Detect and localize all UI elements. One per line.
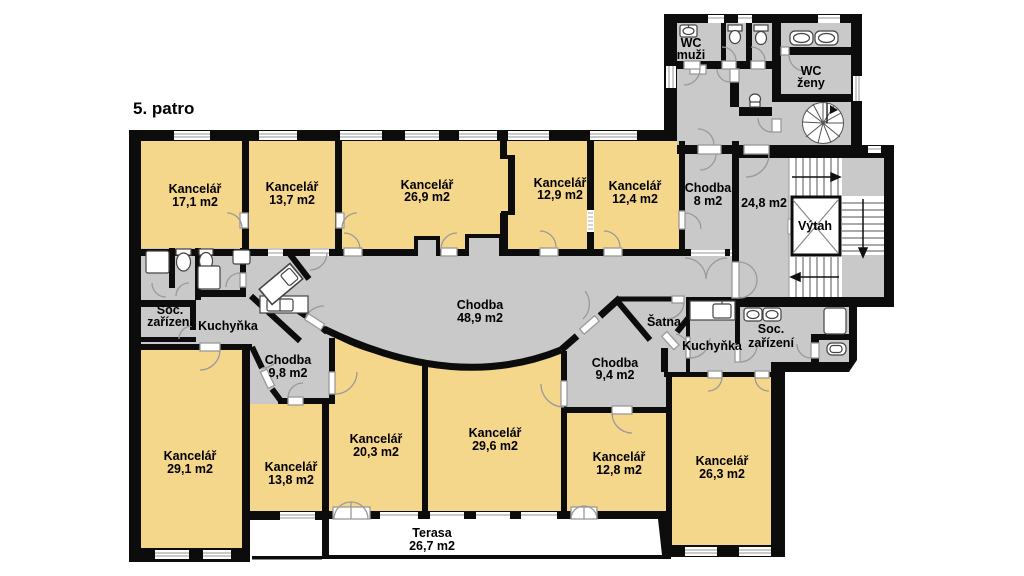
svg-text:29,6 m2: 29,6 m2 — [472, 439, 518, 453]
svg-text:Šatna: Šatna — [647, 314, 682, 329]
svg-text:zařízení: zařízení — [147, 315, 193, 329]
svg-text:48,9 m2: 48,9 m2 — [457, 311, 503, 325]
svg-text:26,3 m2: 26,3 m2 — [699, 467, 745, 481]
svg-text:Kancelář: Kancelář — [469, 426, 522, 440]
svg-text:5. patro: 5. patro — [133, 99, 194, 118]
svg-text:26,9 m2: 26,9 m2 — [404, 190, 450, 204]
svg-text:29,1 m2: 29,1 m2 — [167, 462, 213, 476]
svg-text:26,7 m2: 26,7 m2 — [409, 539, 455, 553]
svg-text:Kancelář: Kancelář — [609, 179, 662, 193]
svg-text:Kancelář: Kancelář — [164, 449, 217, 463]
svg-text:13,7 m2: 13,7 m2 — [269, 193, 315, 207]
svg-text:24,8 m2: 24,8 m2 — [741, 196, 787, 210]
svg-text:12,9 m2: 12,9 m2 — [537, 188, 583, 202]
svg-text:zařízení: zařízení — [748, 336, 794, 350]
svg-text:Kuchyňka: Kuchyňka — [198, 319, 259, 333]
svg-text:Kuchyňka: Kuchyňka — [682, 339, 743, 353]
svg-text:20,3 m2: 20,3 m2 — [353, 445, 399, 459]
svg-text:Kancelář: Kancelář — [696, 454, 749, 468]
svg-text:13,8 m2: 13,8 m2 — [268, 473, 314, 487]
svg-text:Kancelář: Kancelář — [593, 450, 646, 464]
svg-text:12,4 m2: 12,4 m2 — [612, 192, 658, 206]
svg-text:Kancelář: Kancelář — [350, 432, 403, 446]
svg-text:Terasa: Terasa — [412, 526, 452, 540]
svg-text:ženy: ženy — [797, 76, 825, 90]
svg-text:Soc.: Soc. — [758, 322, 784, 336]
svg-text:Chodba: Chodba — [265, 353, 313, 367]
svg-text:Chodba: Chodba — [457, 298, 505, 312]
svg-text:Kancelář: Kancelář — [265, 460, 318, 474]
svg-text:Kancelář: Kancelář — [169, 182, 222, 196]
svg-text:8 m2: 8 m2 — [694, 194, 723, 208]
svg-text:12,8 m2: 12,8 m2 — [596, 463, 642, 477]
svg-text:muži: muži — [677, 48, 705, 62]
svg-text:Chodba: Chodba — [685, 181, 733, 195]
svg-text:Výtah: Výtah — [798, 219, 832, 233]
svg-text:17,1 m2: 17,1 m2 — [172, 195, 218, 209]
svg-text:9,8 m2: 9,8 m2 — [269, 366, 308, 380]
svg-text:Kancelář: Kancelář — [266, 180, 319, 194]
svg-text:9,4 m2: 9,4 m2 — [596, 368, 635, 382]
